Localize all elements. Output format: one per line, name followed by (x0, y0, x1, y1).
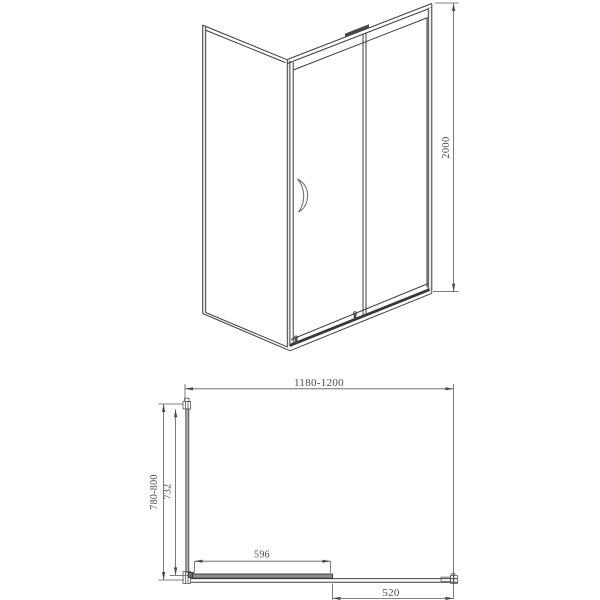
dimension-overall-width: 1180-1200 (185, 377, 453, 599)
front-axonometric-view: 2000 (202, 3, 458, 351)
shower-enclosure-technical-drawing: 2000 1180-1200 780-800 (0, 0, 600, 600)
bottom-roller-left (295, 336, 298, 343)
plan-sliding-door-panel (193, 574, 333, 578)
overall-width-label: 1180-1200 (294, 377, 344, 389)
dimension-door-opening: 520 (333, 584, 454, 600)
door-panel-label: 596 (254, 550, 270, 561)
door-left-stile (287, 60, 293, 347)
top-roller-carriage (345, 24, 369, 37)
sliding-panel-divider (363, 33, 366, 315)
dimension-height: 2000 (433, 3, 459, 292)
side-panel (202, 25, 289, 351)
door-right-stile (427, 4, 432, 294)
height-dim-label: 2000 (441, 136, 452, 158)
plan-view: 1180-1200 780-800 732 (149, 377, 458, 600)
door-opening-label: 520 (382, 587, 400, 599)
door-frame (287, 4, 432, 351)
door-top-rail (287, 4, 432, 71)
dimension-door-panel: 596 (195, 550, 331, 573)
door-handle[interactable] (298, 179, 308, 212)
bottom-roller-right (354, 312, 357, 319)
side-glass-label: 732 (162, 484, 173, 500)
wall-profile-corner (183, 572, 194, 584)
overall-depth-label: 780-800 (149, 474, 160, 509)
plan-side-panel-glass (186, 409, 189, 572)
wall-profile-top (183, 398, 191, 409)
drawing-canvas: 2000 1180-1200 780-800 (0, 0, 600, 600)
plan-bottom-track (191, 579, 458, 583)
door-bottom-rail (290, 284, 432, 351)
